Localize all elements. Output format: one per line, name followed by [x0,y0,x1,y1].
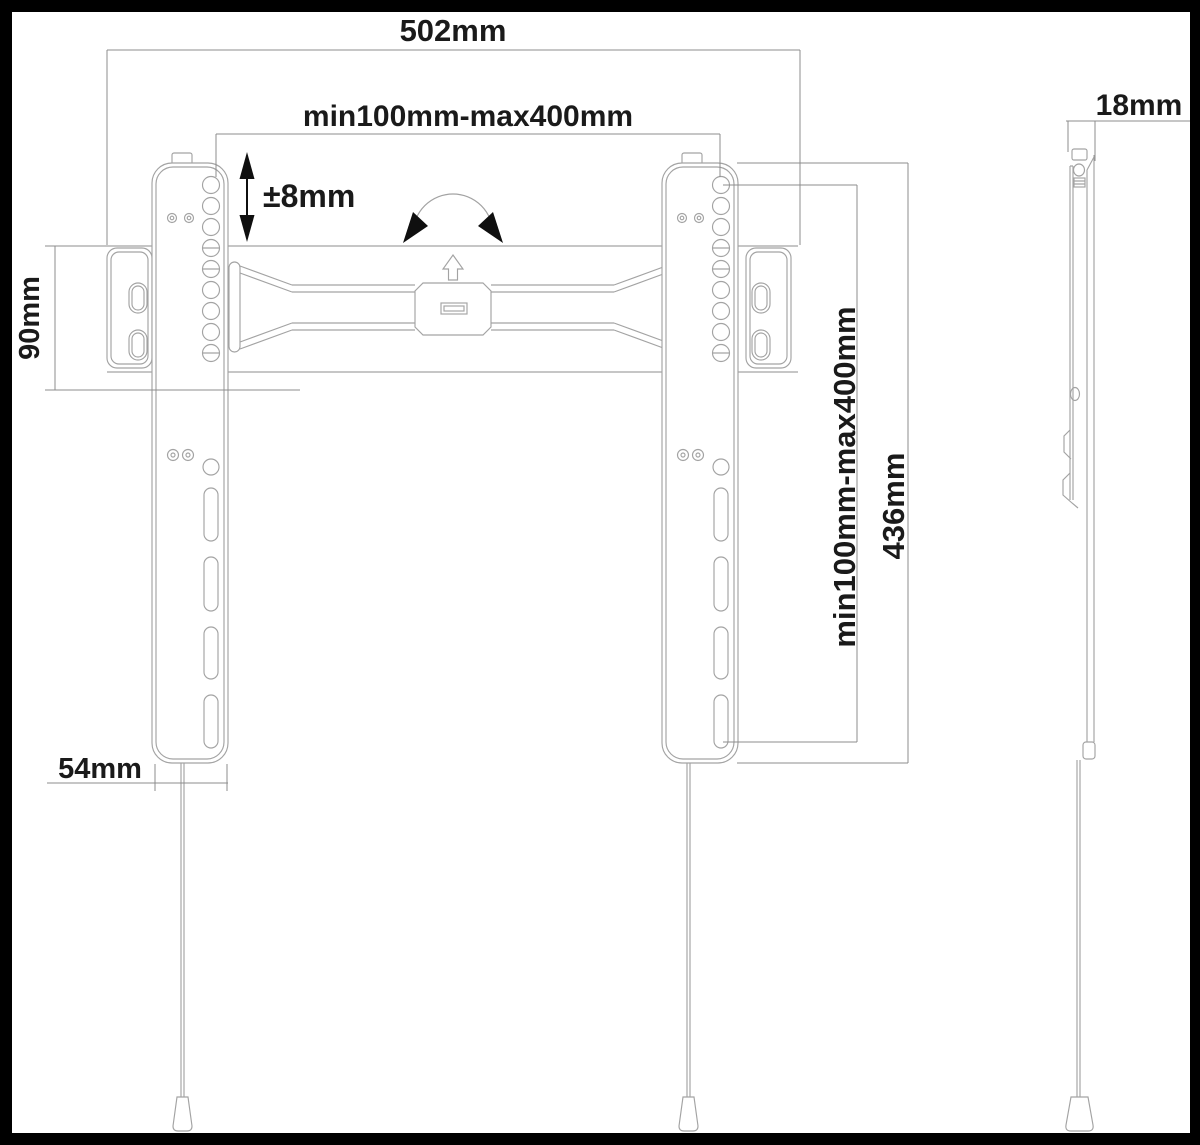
dim-rail-height-label: 90mm [14,276,46,360]
dim-vesa-vertical-label: min100mm-max400mm [827,306,862,647]
dim-vertical-adjust-label: ±8mm [263,178,355,214]
wall-mount-technical-drawing: 502mm min100mm-max400mm ±8mm 90mm min100… [0,0,1200,1145]
vesa-bracket-left [152,153,228,763]
dim-total-width-label: 502mm [400,13,507,48]
dim-profile-depth-label: 18mm [1096,89,1183,122]
dim-bracket-height-label: 436mm [876,453,911,560]
vesa-bracket-right [662,153,738,763]
rail-center-block [415,283,491,335]
dim-vesa-horizontal-label: min100mm-max400mm [303,100,633,133]
dim-bracket-width-label: 54mm [58,753,142,785]
diagram-canvas: 502mm min100mm-max400mm ±8mm 90mm min100… [0,0,1200,1145]
